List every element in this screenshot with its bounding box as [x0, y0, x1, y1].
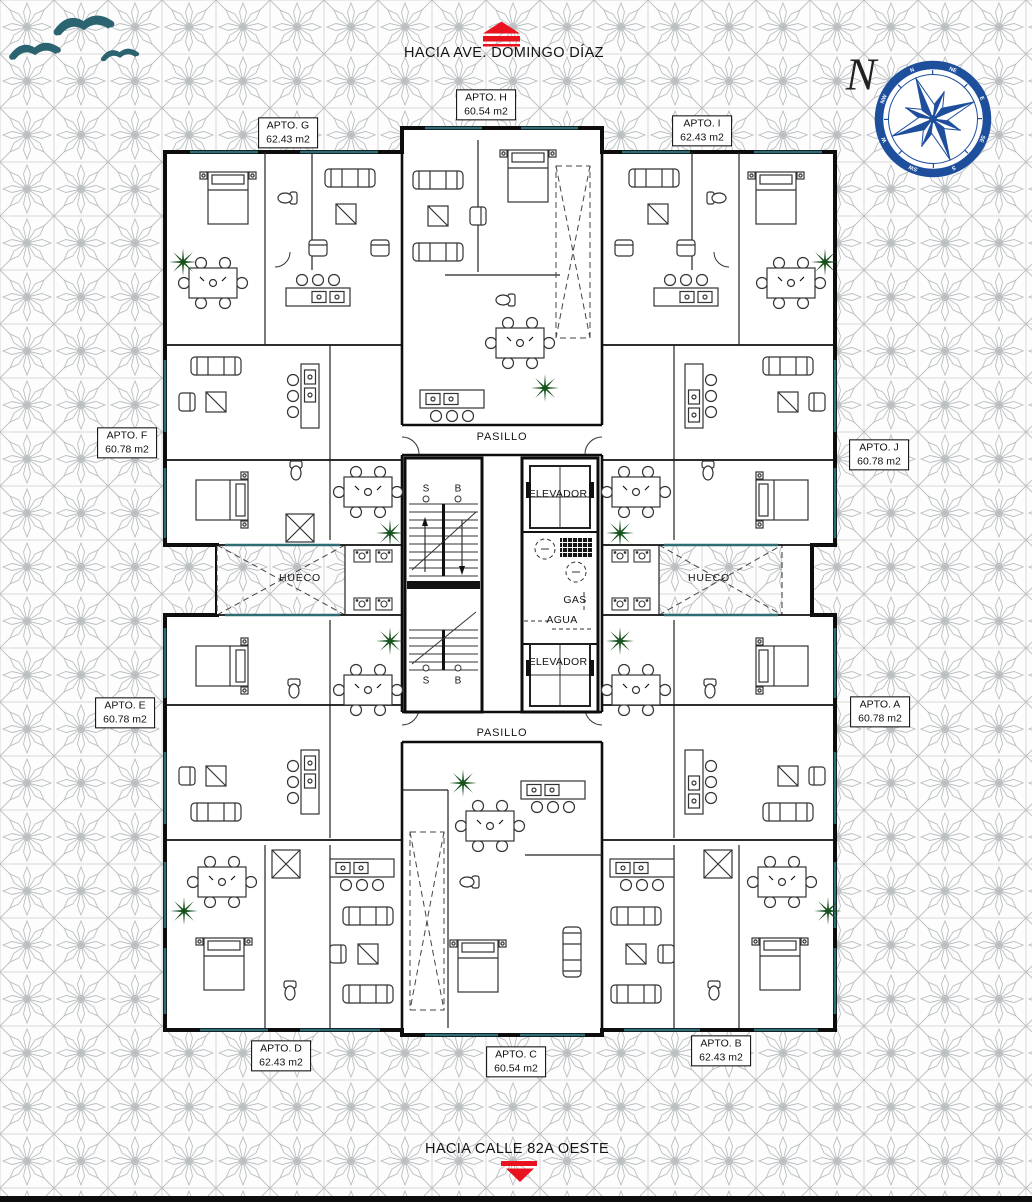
apartment-area: 62.43 m2 — [259, 1056, 303, 1070]
apartment-area: 60.54 m2 — [464, 105, 508, 119]
sofa-icon — [343, 907, 393, 925]
coffee-table-icon — [206, 392, 226, 412]
apartment-name: APTO. E — [103, 699, 147, 713]
toilet-icon — [707, 192, 726, 204]
coffee-table-icon — [206, 766, 226, 786]
plant-icon — [606, 519, 634, 547]
bed-icon — [756, 638, 808, 694]
shower-icon — [272, 850, 300, 878]
sheet-bottom-border — [0, 1196, 1032, 1202]
bed-icon — [450, 940, 506, 992]
sofa-icon — [611, 907, 661, 925]
shower-icon — [286, 514, 314, 542]
apartment-area: 62.43 m2 — [680, 131, 724, 145]
plant-icon — [376, 627, 404, 655]
sofa-icon — [325, 169, 375, 187]
toilet-icon — [290, 461, 302, 480]
apartment-area: 60.78 m2 — [857, 455, 901, 469]
plant-icon — [449, 769, 477, 797]
street-label-top: HACIA AVE. DOMINGO DÍAZ — [404, 45, 604, 61]
toilet-icon — [496, 294, 515, 306]
coffee-table-icon — [428, 206, 448, 226]
armchair-icon — [677, 240, 695, 256]
bed-icon — [196, 938, 252, 990]
corridor-label-top: PASILLO — [477, 431, 528, 443]
armchair-icon — [309, 240, 327, 256]
bed-icon — [752, 938, 808, 990]
armchair-icon — [179, 393, 195, 411]
coffee-table-icon — [358, 944, 378, 964]
hueco-label-left: HUECO — [279, 572, 321, 584]
elevator-label-bottom: ELEVADOR — [529, 656, 588, 668]
bed-icon — [500, 150, 556, 202]
stairwell-block — [405, 458, 482, 712]
toilet-icon — [460, 876, 479, 888]
plant-icon — [169, 248, 197, 276]
coffee-table-icon — [778, 392, 798, 412]
sofa-icon — [191, 803, 241, 821]
plant-icon — [531, 374, 559, 402]
toilet-icon — [278, 192, 297, 204]
apartment-label-b: APTO. B 62.43 m2 — [691, 1035, 751, 1066]
apartment-name: APTO. H — [464, 91, 508, 105]
apartment-label-g: APTO. G 62.43 m2 — [258, 117, 318, 148]
sofa-icon — [563, 927, 581, 977]
sofa-icon — [763, 803, 813, 821]
apartment-name: APTO. F — [105, 429, 149, 443]
apartment-area: 60.54 m2 — [494, 1062, 538, 1076]
bed-icon — [200, 172, 256, 224]
plant-icon — [606, 627, 634, 655]
apartment-label-e: APTO. E 60.78 m2 — [95, 697, 155, 728]
north-letter: N — [846, 48, 877, 101]
stair-up-label-bottom: S — [423, 676, 430, 687]
armchair-icon — [179, 767, 195, 785]
apartment-label-j: APTO. J 60.78 m2 — [849, 439, 909, 470]
washer-icon — [376, 598, 392, 610]
gas-label: GAS — [563, 594, 586, 606]
sofa-icon — [611, 985, 661, 1003]
washer-icon — [612, 598, 628, 610]
coffee-table-icon — [626, 944, 646, 964]
washer-icon — [634, 550, 650, 562]
floor-plan-drawing: N NE E SE S SW W NW — [0, 0, 1032, 1202]
apartment-label-d: APTO. D 62.43 m2 — [251, 1040, 311, 1071]
apartment-name: APTO. J — [857, 441, 901, 455]
street-label-bottom: HACIA CALLE 82A OESTE — [425, 1141, 609, 1157]
toilet-icon — [708, 981, 720, 1000]
shower-icon — [704, 850, 732, 878]
apartment-label-c: APTO. C 60.54 m2 — [486, 1046, 546, 1077]
apartment-name: APTO. G — [266, 119, 310, 133]
stair-up-label-top: S — [423, 484, 430, 495]
bed-icon — [748, 172, 804, 224]
plant-icon — [170, 897, 198, 925]
apartment-name: APTO. D — [259, 1042, 303, 1056]
armchair-icon — [371, 240, 389, 256]
armchair-icon — [658, 945, 674, 963]
shaft-hatch — [560, 538, 592, 558]
apartment-name: APTO. A — [858, 698, 902, 712]
washer-icon — [376, 550, 392, 562]
toilet-icon — [702, 461, 714, 480]
corridor-label-bottom: PASILLO — [477, 727, 528, 739]
armchair-icon — [470, 207, 486, 225]
plant-icon — [376, 519, 404, 547]
apartment-label-f: APTO. F 60.78 m2 — [97, 427, 157, 458]
apartment-name: APTO. C — [494, 1048, 538, 1062]
stair-down-label-bottom: B — [455, 676, 462, 687]
coffee-table-icon — [336, 204, 356, 224]
washer-icon — [612, 550, 628, 562]
stair-down-label-top: B — [455, 484, 462, 495]
apartment-area: 60.78 m2 — [103, 713, 147, 727]
bed-icon — [196, 472, 248, 528]
armchair-icon — [615, 240, 633, 256]
apartment-label-a: APTO. A 60.78 m2 — [850, 696, 910, 727]
plant-icon — [811, 248, 839, 276]
sofa-icon — [763, 357, 813, 375]
apartment-name: APTO. B — [699, 1037, 743, 1051]
apartment-name: APTO. I — [680, 117, 724, 131]
hueco-label-right: HUECO — [688, 572, 730, 584]
apartment-area: 62.43 m2 — [266, 133, 310, 147]
elevator-label-top: ELEVADOR — [529, 488, 588, 500]
sofa-icon — [413, 171, 463, 189]
washer-icon — [354, 550, 370, 562]
sofa-icon — [191, 357, 241, 375]
washer-icon — [354, 598, 370, 610]
washer-icon — [634, 598, 650, 610]
apartment-area: 60.78 m2 — [105, 443, 149, 457]
armchair-icon — [809, 767, 825, 785]
plant-icon — [814, 897, 842, 925]
apartment-label-i: APTO. I 62.43 m2 — [672, 115, 732, 146]
coffee-table-icon — [778, 766, 798, 786]
toilet-icon — [288, 679, 300, 698]
agua-label: AGUA — [546, 614, 577, 626]
apartment-area: 62.43 m2 — [699, 1051, 743, 1065]
apartment-label-h: APTO. H 60.54 m2 — [456, 89, 516, 120]
bed-icon — [196, 638, 248, 694]
sofa-icon — [343, 985, 393, 1003]
sofa-icon — [629, 169, 679, 187]
floor-plan-sheet: N NE E SE S SW W NW HACIA AVE. DOMINGO D… — [0, 0, 1032, 1202]
sofa-icon — [413, 243, 463, 261]
coffee-table-icon — [648, 204, 668, 224]
armchair-icon — [809, 393, 825, 411]
toilet-icon — [704, 679, 716, 698]
armchair-icon — [330, 945, 346, 963]
apartment-area: 60.78 m2 — [858, 712, 902, 726]
bed-icon — [756, 472, 808, 528]
toilet-icon — [284, 981, 296, 1000]
